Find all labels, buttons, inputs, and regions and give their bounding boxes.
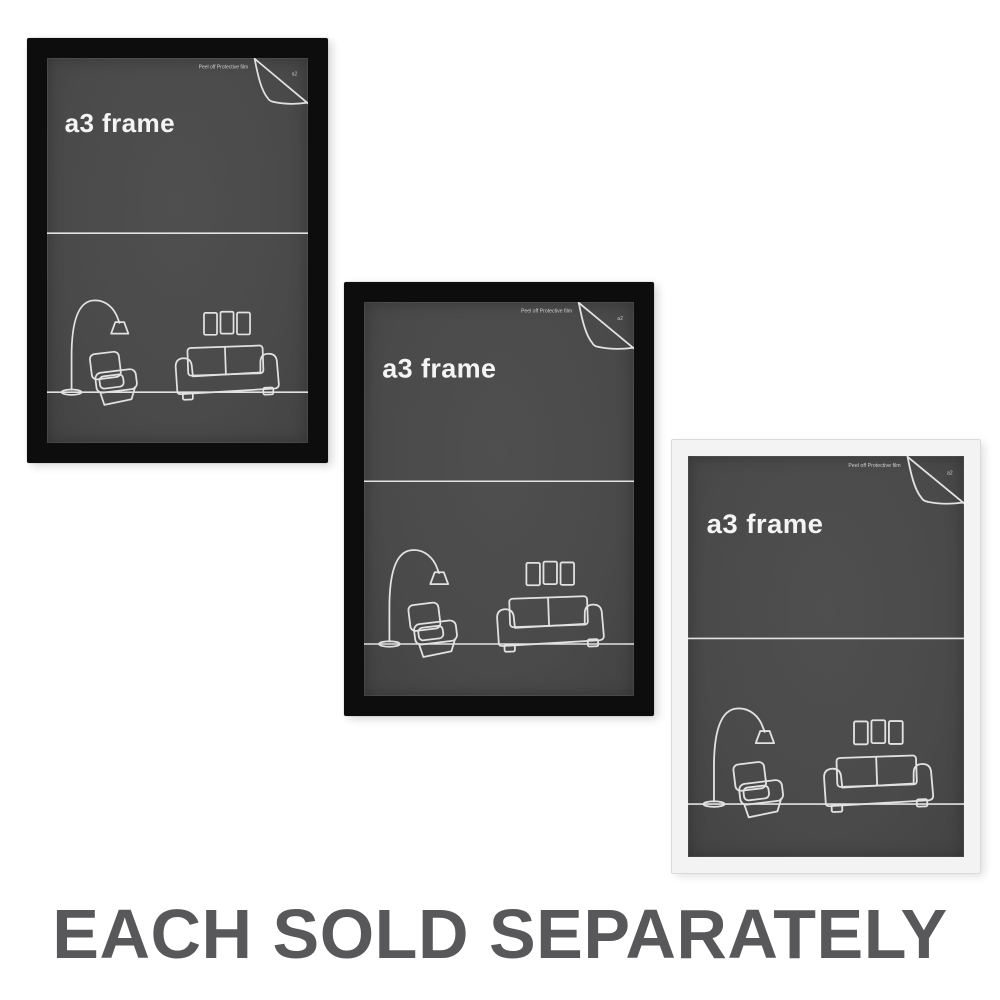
black-frame-1 [27,38,328,463]
product-image: a3 frame Peel off Protective film a2 [0,0,1000,1000]
frame-insert [688,456,964,857]
black-frame-2 [344,282,654,716]
frame-insert [364,302,634,696]
insert-graphic [364,302,634,696]
frame-insert [47,58,308,443]
caption: EACH SOLD SEPARATELY [0,894,1000,974]
white-frame [672,440,980,873]
insert-graphic [47,58,308,443]
insert-graphic [688,456,964,857]
